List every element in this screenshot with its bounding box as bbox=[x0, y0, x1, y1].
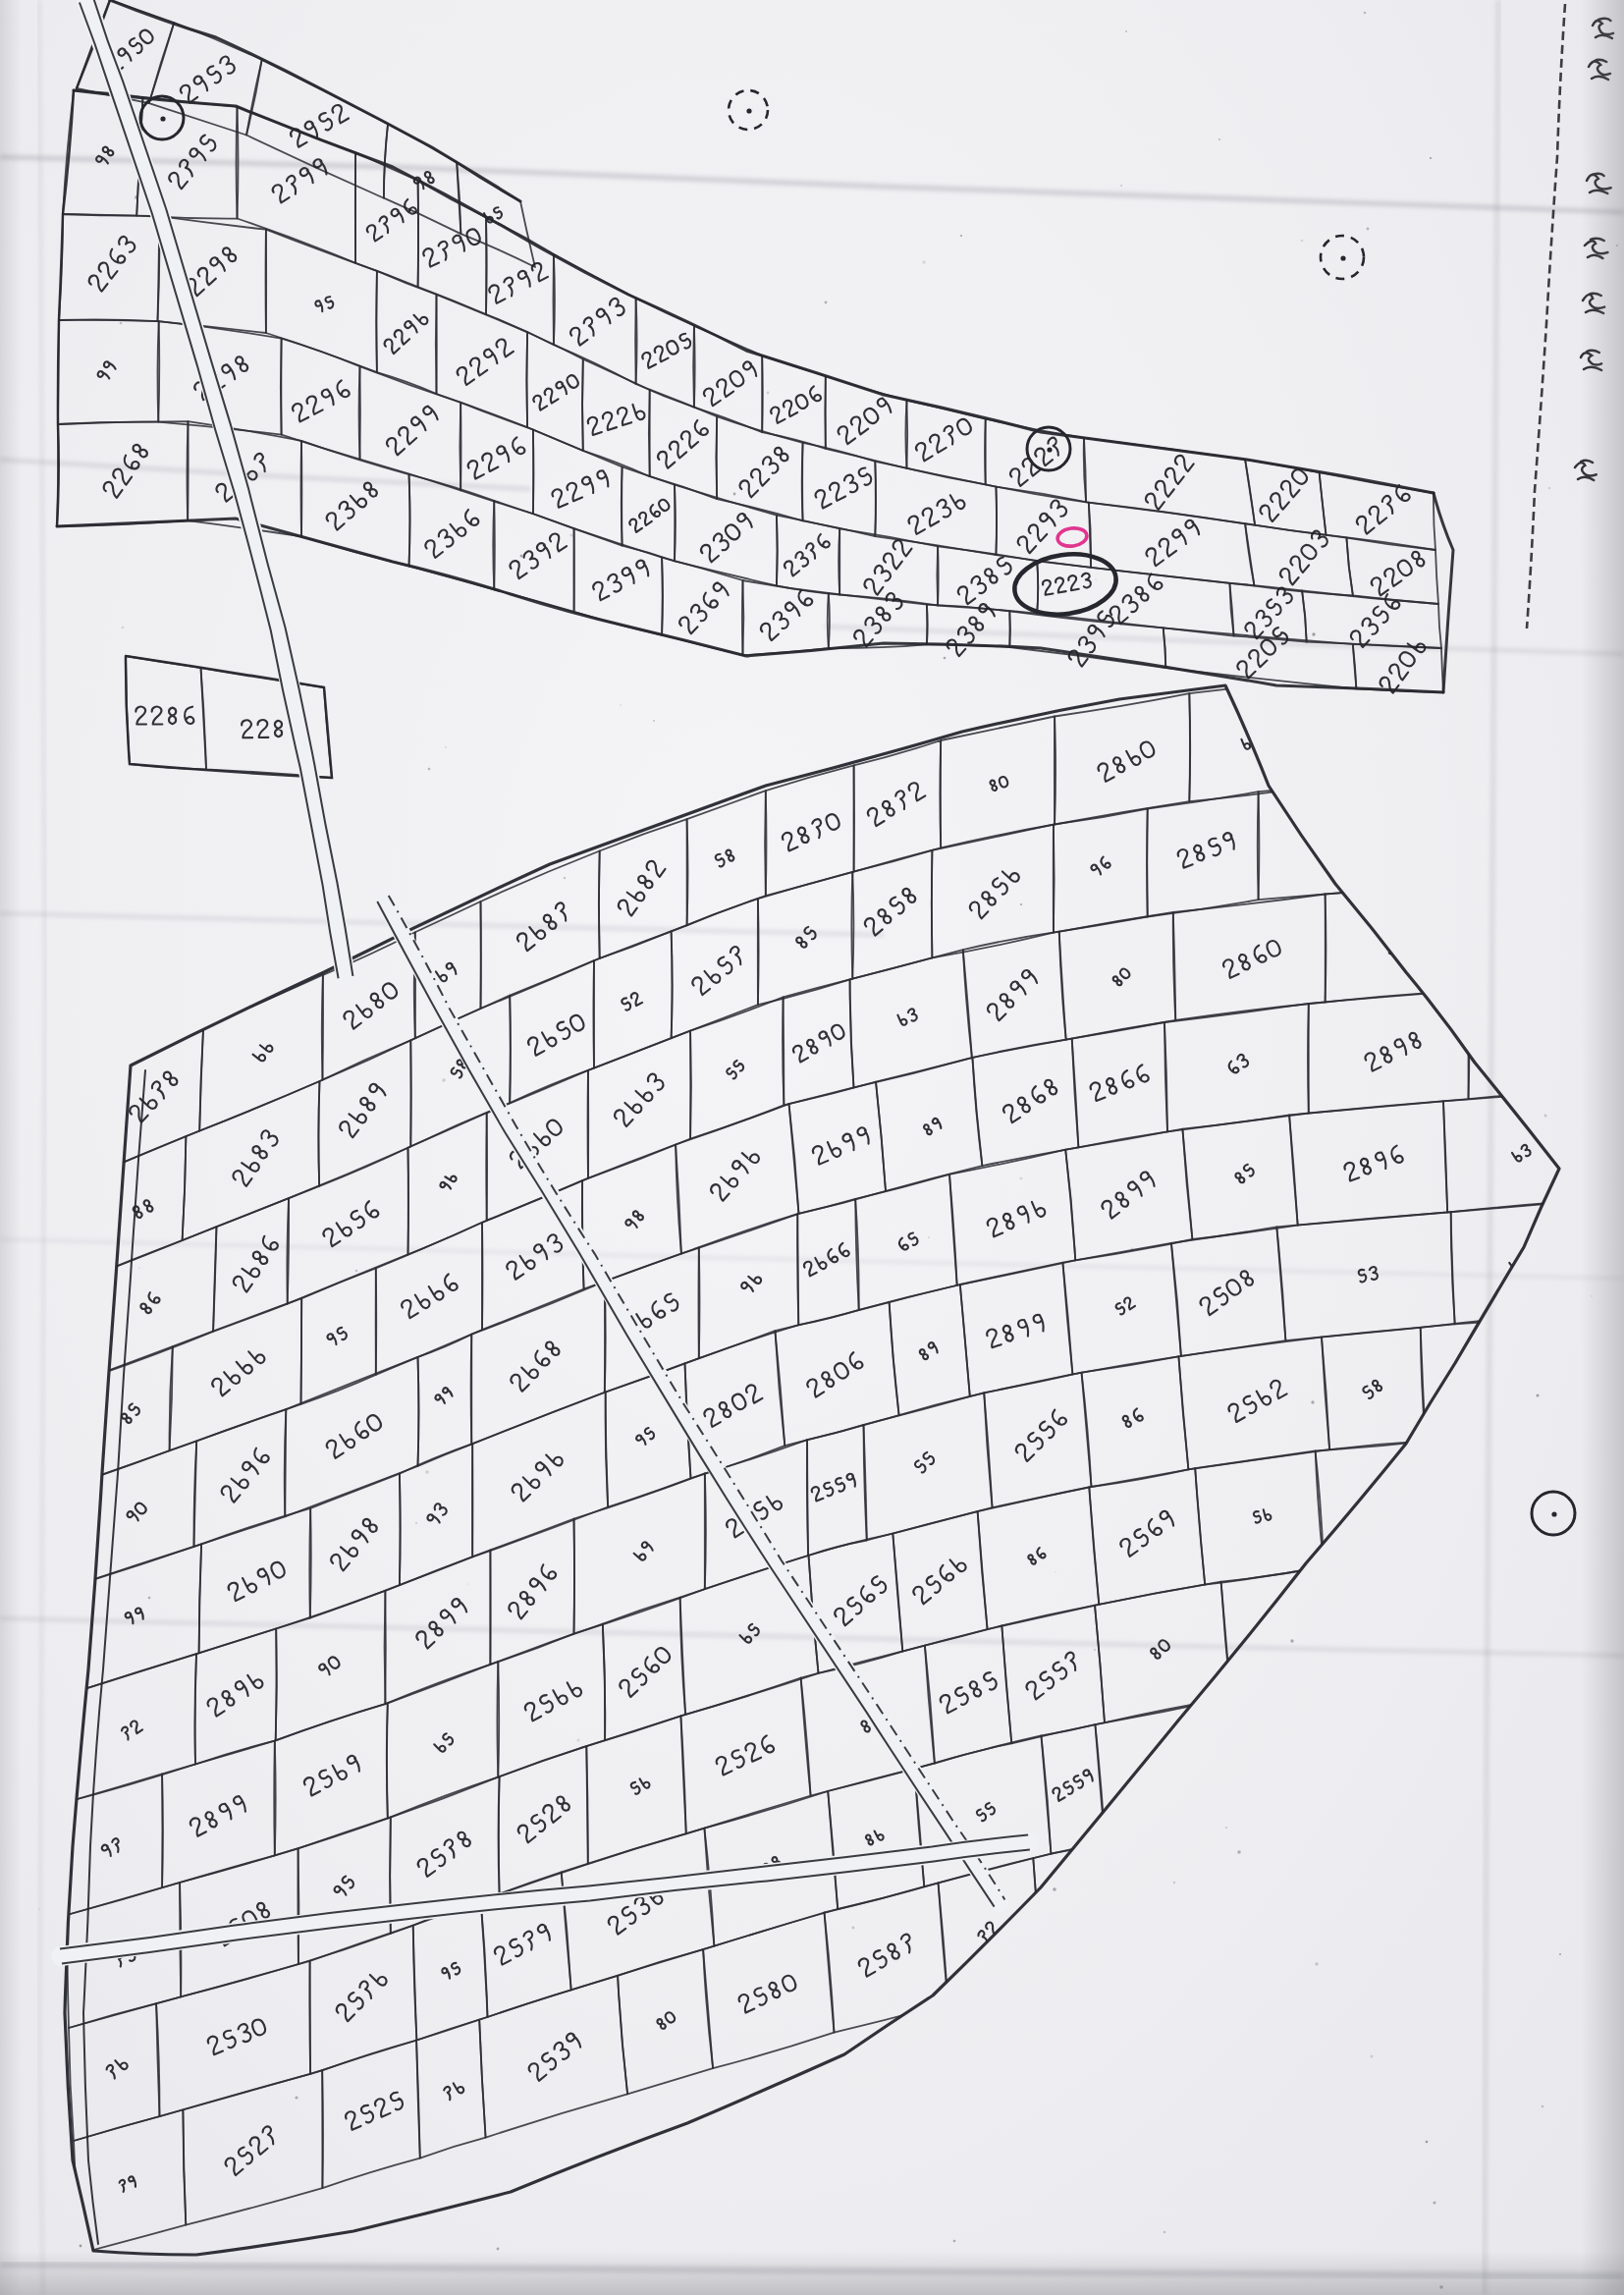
plot-number-label bbox=[702, 360, 758, 407]
scan-speck bbox=[569, 533, 572, 536]
plot-number-label bbox=[1235, 626, 1289, 679]
plot-number-label bbox=[1090, 856, 1111, 877]
plot-cell bbox=[851, 850, 932, 979]
plot-number-label bbox=[333, 1876, 355, 1898]
scan-speck bbox=[1094, 1649, 1096, 1651]
scan-speck bbox=[355, 1270, 358, 1273]
plot-number-label bbox=[1355, 484, 1411, 534]
plot-cell bbox=[932, 825, 1054, 958]
plot-number-label bbox=[990, 776, 1009, 792]
scan-speck bbox=[564, 877, 566, 879]
plot-number-label bbox=[624, 1210, 644, 1230]
plot-number-label bbox=[703, 1383, 763, 1427]
plot-cell bbox=[246, 60, 388, 198]
plot-cell bbox=[1258, 778, 1428, 900]
plot-number-label bbox=[709, 1146, 761, 1201]
scan-speck bbox=[295, 2096, 298, 2099]
scan-speck bbox=[1364, 12, 1367, 15]
plot-cell bbox=[149, 23, 262, 136]
scan-speck bbox=[1426, 2141, 1429, 2144]
plot-cell bbox=[58, 319, 159, 424]
plot-cell bbox=[1059, 912, 1176, 1040]
plot-number-label bbox=[635, 1427, 656, 1447]
plot-cell bbox=[742, 580, 830, 655]
plot-number-label bbox=[897, 1009, 918, 1026]
plot-number-label bbox=[811, 1126, 871, 1166]
plot-cell bbox=[193, 1409, 286, 1547]
plot-cell bbox=[360, 366, 461, 490]
plot-number-label bbox=[291, 380, 351, 423]
plot-number-label bbox=[1025, 1651, 1082, 1700]
edge-shadows bbox=[0, 0, 1624, 2295]
plot-number-label bbox=[1512, 1144, 1532, 1163]
plot-cell bbox=[413, 1901, 488, 2041]
scan-speck bbox=[1053, 1887, 1056, 1891]
plot-number-label bbox=[426, 1503, 448, 1526]
plot-number-label bbox=[511, 1448, 565, 1502]
plot-cell bbox=[67, 1654, 196, 1802]
plot-number-label bbox=[206, 1670, 264, 1718]
plot-cell bbox=[487, 1070, 588, 1221]
plot-number-label bbox=[343, 980, 400, 1029]
plot-number-label bbox=[1518, 926, 1538, 944]
plot-number-label bbox=[783, 533, 831, 576]
plot-cell bbox=[1001, 1606, 1105, 1744]
plot-number-label bbox=[434, 1732, 455, 1753]
plot-number-label bbox=[986, 1313, 1046, 1347]
survey-circle-dot bbox=[746, 108, 751, 113]
plot-cell bbox=[777, 516, 839, 595]
plot-number-label bbox=[509, 1339, 561, 1392]
plot-number-label bbox=[87, 235, 136, 292]
plot-cell bbox=[927, 605, 1010, 647]
plot-number-label bbox=[656, 2011, 677, 2030]
scan-speck bbox=[38, 1908, 40, 1910]
map-boundary-line bbox=[57, 90, 74, 526]
plot-number-label bbox=[656, 419, 709, 468]
plot-cell bbox=[1451, 1200, 1591, 1324]
plot-cell bbox=[905, 401, 985, 485]
plot-number-label bbox=[189, 1794, 247, 1836]
scan-speck bbox=[1433, 2201, 1435, 2204]
plot-number-label bbox=[232, 1235, 280, 1293]
plot-number-label bbox=[423, 509, 480, 559]
plot-cell bbox=[606, 1363, 691, 1506]
plot-cell bbox=[1320, 472, 1435, 550]
scan-speck bbox=[1544, 1115, 1547, 1118]
plot-cell bbox=[1326, 883, 1463, 1003]
plot-number-label bbox=[523, 1678, 582, 1721]
plot-number-label bbox=[102, 443, 149, 499]
plot-cell bbox=[126, 656, 206, 769]
scan-speck bbox=[944, 657, 947, 660]
scan-speck bbox=[1020, 903, 1022, 905]
paper-fold-crease bbox=[39, 0, 45, 2295]
plot-cell bbox=[74, 1442, 196, 1587]
scan-speck bbox=[428, 768, 431, 771]
plot-cell bbox=[1233, 1800, 1376, 1938]
scan-speck bbox=[1131, 1248, 1134, 1251]
survey-circle-dot bbox=[1551, 1511, 1556, 1516]
map-boundary-line bbox=[83, 1070, 145, 2244]
scan-speck bbox=[1315, 1962, 1318, 1965]
plot-cell bbox=[784, 979, 854, 1105]
scan-speck bbox=[1548, 487, 1550, 489]
plot-number-label bbox=[318, 1655, 342, 1677]
survey-circle-dot bbox=[160, 116, 165, 121]
plot-number-label bbox=[289, 103, 349, 148]
scan-speck bbox=[1371, 2055, 1374, 2058]
paper-fold-crease bbox=[825, 627, 1624, 654]
plot-number-label bbox=[526, 1012, 586, 1057]
plot-cell bbox=[59, 214, 159, 321]
plot-number-label bbox=[325, 480, 379, 530]
plot-number-label bbox=[414, 1597, 468, 1649]
scan-speck bbox=[1218, 138, 1220, 140]
map-boundary-line bbox=[1434, 493, 1453, 692]
plot-number-label bbox=[179, 55, 237, 104]
plot-number-label bbox=[863, 886, 917, 936]
scan-speck bbox=[445, 746, 447, 748]
scan-speck bbox=[148, 1597, 151, 1600]
plot-cell bbox=[1469, 980, 1592, 1099]
plot-cell bbox=[376, 1223, 483, 1375]
plot-cell bbox=[479, 1976, 627, 2138]
plot-cell bbox=[960, 1263, 1073, 1396]
plot-cell bbox=[1072, 1022, 1167, 1147]
scan-speck bbox=[1095, 578, 1097, 580]
plot-number-label bbox=[866, 781, 925, 827]
plot-number-label bbox=[532, 373, 580, 411]
plot-number-label bbox=[385, 405, 439, 456]
plot-cell bbox=[758, 872, 854, 1005]
plot-cell bbox=[83, 1227, 217, 1380]
plot-cell bbox=[199, 1508, 311, 1654]
scan-speck bbox=[1290, 1639, 1293, 1642]
plot-number-label bbox=[1517, 1034, 1537, 1051]
plot-number-label bbox=[1162, 1763, 1181, 1778]
plot-number-label bbox=[1145, 519, 1202, 567]
plot-number-label bbox=[1055, 1882, 1113, 1928]
scan-speck bbox=[120, 322, 123, 325]
region-lower_lobe bbox=[67, 658, 1592, 2254]
plot-number-label bbox=[986, 968, 1039, 1021]
scan-speck bbox=[1559, 1953, 1561, 1955]
plot-number-label bbox=[302, 1754, 361, 1796]
plot-number-label bbox=[1260, 1726, 1320, 1768]
paper-fold-crease bbox=[0, 460, 530, 489]
plot-number-label bbox=[976, 1802, 997, 1822]
plot-number-label bbox=[1097, 738, 1157, 782]
plot-number-label bbox=[1253, 1508, 1272, 1523]
plot-number-label bbox=[1511, 1598, 1532, 1614]
scan-speck bbox=[653, 720, 655, 722]
plot-number-label bbox=[441, 1962, 461, 1980]
scan-speck bbox=[556, 254, 558, 256]
plot-cell bbox=[807, 1425, 867, 1556]
plot-number-label bbox=[923, 1118, 943, 1136]
plot-cell bbox=[162, 1741, 276, 1888]
scan-speck bbox=[415, 1522, 416, 1523]
plot-number-label bbox=[740, 1272, 763, 1294]
plot-cell bbox=[1055, 693, 1190, 824]
plot-cell bbox=[1331, 1673, 1444, 1803]
plot-number-label bbox=[1349, 593, 1401, 648]
plot-cell bbox=[1229, 1683, 1340, 1818]
right-edge-shadow bbox=[1581, 0, 1624, 2295]
plot-cell bbox=[497, 1624, 605, 1777]
plot-cell bbox=[1189, 681, 1306, 802]
plot-number-label bbox=[1259, 466, 1310, 522]
scan-speck bbox=[1120, 185, 1121, 186]
plot-number-label bbox=[232, 1129, 280, 1187]
plot-cell bbox=[1456, 1777, 1591, 1909]
plot-number-label bbox=[1226, 1054, 1249, 1075]
plot-cell bbox=[765, 765, 854, 896]
plot-number-label bbox=[613, 1072, 666, 1127]
plot-number-label bbox=[1244, 586, 1294, 639]
scan-speck bbox=[587, 1867, 588, 1868]
plot-number-label bbox=[509, 531, 568, 579]
plot-number-label bbox=[338, 1082, 387, 1138]
paper-fold-crease bbox=[0, 1239, 1624, 1279]
scan-speck bbox=[80, 2245, 82, 2248]
plot-cell bbox=[1322, 1328, 1426, 1449]
plot-number-label bbox=[422, 226, 483, 267]
scan-speck bbox=[467, 1583, 468, 1584]
plot-number-label bbox=[139, 1291, 161, 1314]
scan-speck bbox=[577, 1739, 580, 1742]
plot-number-label bbox=[516, 1794, 571, 1843]
plot-number-label bbox=[507, 1563, 558, 1619]
plot-number-label bbox=[634, 1541, 654, 1561]
plot-number-label bbox=[1001, 1077, 1058, 1122]
scan-speck bbox=[520, 555, 523, 558]
plot-cell bbox=[301, 441, 410, 567]
plot-number-label bbox=[939, 1670, 999, 1713]
plot-number-label bbox=[1027, 1548, 1046, 1565]
plot-number-label bbox=[1370, 549, 1426, 595]
scan-speck bbox=[135, 195, 138, 199]
plot-cell bbox=[309, 1474, 400, 1618]
plot-cell bbox=[1129, 1819, 1243, 1958]
plot-cell bbox=[984, 1373, 1091, 1508]
plot-cell bbox=[672, 899, 759, 1038]
plot-number-label bbox=[568, 297, 626, 346]
plot-cell bbox=[409, 474, 495, 589]
plot-cell bbox=[593, 931, 672, 1067]
paper-fold-crease bbox=[0, 157, 1624, 212]
plot-number-label bbox=[865, 1829, 885, 1846]
plot-number-label bbox=[968, 865, 1021, 919]
scan-speck bbox=[447, 1236, 449, 1238]
plot-number-label bbox=[345, 2091, 405, 2130]
plot-cell bbox=[213, 1198, 289, 1332]
scan-speck bbox=[1055, 1571, 1056, 1573]
plot-number-label bbox=[128, 1069, 179, 1122]
plot-number-label bbox=[1498, 1369, 1519, 1388]
plot-cell bbox=[437, 295, 528, 427]
paper-fold-crease bbox=[1485, 0, 1498, 2295]
plot-number-label bbox=[1008, 436, 1064, 487]
scan-speck bbox=[1311, 1400, 1314, 1403]
plot-number-label bbox=[434, 1387, 454, 1405]
plot-number-label bbox=[1227, 1379, 1287, 1423]
plot-cell bbox=[1426, 764, 1591, 886]
plot-mesh bbox=[57, 0, 1592, 2254]
plot-number-label bbox=[837, 397, 893, 445]
plot-number-label bbox=[715, 848, 735, 867]
plot-number-label bbox=[121, 1720, 142, 1740]
plot-cell bbox=[618, 1949, 713, 2094]
plot-number-label bbox=[770, 386, 823, 423]
scan-speck bbox=[1340, 1448, 1343, 1450]
plot-number-label bbox=[759, 589, 814, 641]
plot-cell bbox=[183, 1081, 320, 1240]
plot-cell bbox=[562, 1829, 715, 1991]
plot-number-label bbox=[781, 811, 841, 851]
plot-number-label bbox=[185, 246, 239, 297]
left-edge-shadow bbox=[0, 0, 22, 2295]
plot-cell bbox=[490, 1519, 574, 1665]
plot-cell bbox=[309, 1926, 416, 2074]
scan-speck bbox=[928, 1236, 930, 1238]
plot-cell bbox=[199, 975, 323, 1131]
plot-number-label bbox=[325, 1412, 384, 1459]
plot-cell bbox=[457, 162, 535, 267]
plot-number-label bbox=[400, 1274, 459, 1319]
scan-speck bbox=[1430, 157, 1432, 159]
plot-number-label bbox=[329, 1517, 379, 1572]
plot-number-label bbox=[1405, 1847, 1427, 1865]
plot-cell bbox=[322, 2041, 420, 2189]
scan-speck bbox=[733, 493, 736, 496]
pink-marker-oval bbox=[1056, 526, 1088, 548]
scan-speck bbox=[1125, 30, 1127, 32]
scan-speck bbox=[852, 1927, 855, 1930]
road-edge bbox=[389, 896, 1005, 1899]
plot-number-label bbox=[224, 2125, 280, 2176]
plot-number-label bbox=[488, 261, 548, 304]
scan-speck bbox=[1237, 1850, 1241, 1854]
plot-cell bbox=[533, 430, 623, 546]
plot-number-label bbox=[1503, 1718, 1526, 1737]
plot-number-label bbox=[101, 1837, 124, 1858]
scan-speck bbox=[767, 392, 770, 395]
scan-speck bbox=[425, 1470, 429, 1474]
plot-number-label bbox=[1121, 1408, 1143, 1428]
plot-cell bbox=[1221, 1567, 1331, 1699]
plot-number-label bbox=[737, 1973, 798, 2013]
plot-cell bbox=[850, 950, 972, 1087]
plot-number-label bbox=[1518, 1831, 1538, 1848]
plot-number-label bbox=[227, 1559, 287, 1602]
scan-speck bbox=[497, 2248, 500, 2251]
paper-fold-crease bbox=[0, 913, 884, 935]
plot-cell bbox=[925, 1625, 1011, 1763]
plot-number-label bbox=[740, 1623, 761, 1644]
plot-number-label bbox=[1176, 832, 1236, 869]
plot-number-label bbox=[551, 469, 610, 509]
plot-number-label bbox=[493, 1923, 552, 1965]
plot-number-label bbox=[436, 962, 458, 983]
plot-number-label bbox=[911, 1555, 967, 1606]
plot-cell bbox=[1443, 1088, 1591, 1213]
plot-number-label bbox=[1114, 1296, 1135, 1315]
plot-number-label bbox=[466, 437, 526, 480]
plot-number-label bbox=[914, 1451, 936, 1473]
plot-cell bbox=[1095, 1698, 1238, 1842]
plot-number-label bbox=[322, 1200, 380, 1247]
plot-number-label bbox=[897, 1231, 919, 1251]
plot-cell bbox=[1033, 1838, 1139, 1979]
plot-cell bbox=[1316, 1439, 1459, 1567]
plot-number-label bbox=[986, 1198, 1046, 1237]
plot-number-label bbox=[105, 2056, 129, 2079]
plot-number-label bbox=[119, 2175, 137, 2192]
plot-number-label bbox=[1112, 967, 1132, 987]
plot-number-label bbox=[1336, 704, 1395, 748]
plot-number-label bbox=[738, 446, 790, 499]
plot-number-label bbox=[126, 1501, 148, 1523]
plot-number-label bbox=[95, 145, 115, 166]
plot-number-label bbox=[592, 559, 651, 601]
plot-cell bbox=[676, 1104, 798, 1254]
plot-cell bbox=[1324, 1556, 1446, 1683]
plot-number-label bbox=[1222, 938, 1283, 978]
plot-cell bbox=[526, 332, 583, 451]
plot-number-label bbox=[630, 1776, 651, 1794]
scan-speck bbox=[1019, 1176, 1022, 1179]
scan-speck bbox=[122, 627, 125, 629]
plot-number-label bbox=[1278, 529, 1329, 585]
plot-cell bbox=[690, 997, 784, 1138]
plot-number-label bbox=[220, 1448, 271, 1503]
plot-number-label bbox=[914, 416, 973, 462]
road-south bbox=[60, 1835, 1030, 1964]
plot-cell bbox=[1302, 591, 1441, 649]
plot-cell bbox=[499, 1746, 588, 1894]
plot-number-label bbox=[365, 198, 417, 242]
plot-number-label bbox=[791, 1022, 846, 1063]
plot-number-label bbox=[206, 2017, 267, 2055]
plot-cell bbox=[1062, 1243, 1181, 1375]
plot-number-label bbox=[121, 1403, 141, 1425]
scan-speck bbox=[1173, 1882, 1175, 1884]
plot-cell bbox=[494, 501, 574, 612]
scan-speck bbox=[1301, 240, 1304, 243]
plot-number-label bbox=[814, 466, 874, 509]
map-boundary-line bbox=[74, 90, 1434, 493]
plot-number-label bbox=[1089, 1065, 1150, 1102]
plot-number-label bbox=[383, 310, 429, 355]
plot-number-label bbox=[907, 491, 966, 535]
plot-cell bbox=[586, 1716, 686, 1864]
plot-number-label bbox=[1496, 703, 1518, 723]
survey-circle-dot bbox=[1340, 255, 1345, 260]
plot-number-label bbox=[1364, 1031, 1422, 1072]
plot-number-label bbox=[326, 1327, 348, 1346]
plot-number-label bbox=[617, 858, 666, 916]
plot-cell bbox=[1082, 1356, 1189, 1487]
plot-number-label bbox=[1277, 1848, 1338, 1887]
scan-speck bbox=[620, 704, 622, 706]
plot-cell bbox=[662, 558, 743, 655]
bottom-edge-shadow bbox=[0, 2251, 1624, 2295]
plot-cell bbox=[574, 1473, 705, 1633]
scan-speck bbox=[1542, 2105, 1543, 2107]
plot-cell bbox=[1454, 1426, 1591, 1555]
